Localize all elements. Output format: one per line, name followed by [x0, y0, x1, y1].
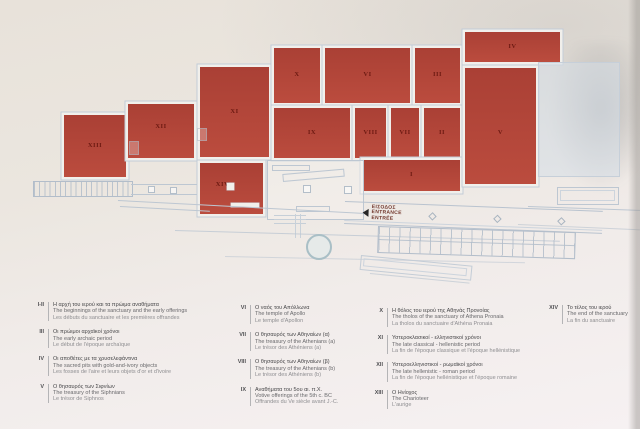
right-building-inner	[560, 190, 615, 201]
column-base	[493, 215, 501, 223]
legend-entry-vi: VIΟ ναός του ΑπόλλωναThe temple of Apoll…	[224, 305, 338, 324]
legend-line-fr: Les fosses de l'aire et leurs objets d'o…	[53, 369, 171, 375]
legend-entry-v: VΟ θησαυρός των ΣιφνίωνThe treasury of t…	[18, 384, 187, 403]
legend-numeral: VI	[224, 305, 251, 324]
legend-entry-xii: XIIΥστεροελληνιστικοί - ρωμαϊκοί χρόνοιT…	[361, 362, 520, 381]
legend-entry-ix: IXΑναθήματα του 5ου αι. π.Χ.Votive offer…	[224, 387, 338, 406]
room-i: I	[363, 160, 460, 191]
legend-entry-xiv: XIVΤο τέλος του ιερούThe end of the sanc…	[532, 305, 628, 324]
column-base	[557, 217, 565, 225]
pale-area	[538, 62, 620, 177]
panel-edge	[628, 0, 640, 429]
legend-numeral: V	[18, 384, 49, 403]
room-label-viii: VIII	[363, 130, 377, 137]
legend-text: Η θόλος του ιερού της Αθηνάς ΠρονοίαςThe…	[388, 308, 504, 327]
legend-column-2: VIΟ ναός του ΑπόλλωναThe temple of Apoll…	[224, 305, 338, 414]
legend-numeral: VIII	[224, 359, 251, 378]
column-base	[428, 212, 436, 220]
legend-numeral: XIV	[532, 305, 563, 324]
legend-line-fr: Le temple d'Apollon	[255, 318, 309, 324]
legend-entry-iv: IVΟι αποθέτες με τα χρυσελεφάντιναThe sa…	[18, 356, 187, 375]
legend-numeral: III	[18, 329, 49, 348]
room-vii: VII	[391, 108, 419, 158]
room-label-vi: VI	[363, 72, 371, 79]
legend-numeral: X	[361, 308, 388, 327]
legend-line-fr: Le trésor de Siphnos	[53, 396, 125, 402]
gridded-stoa	[377, 226, 576, 259]
steps	[274, 212, 306, 224]
legend-line-en: The beginnings of the sanctuary and the …	[53, 308, 187, 314]
legend-line-fr: L'aurige	[392, 402, 429, 408]
room-vi: VI	[325, 48, 410, 103]
courtyard-base	[272, 165, 310, 171]
room-label-v: V	[498, 130, 503, 137]
legend-entry-i-ii: I-IIΗ αρχή του ιερού και τα πρώιμα αναθή…	[18, 302, 187, 321]
room-label-x: X	[294, 72, 299, 79]
legend-column-1: I-IIΗ αρχή του ιερού και τα πρώιμα αναθή…	[18, 302, 187, 411]
legend-line-fr: Le trésor des Athéniens (b)	[255, 372, 335, 378]
legend-text: Το τέλος του ιερούThe end of the sanctua…	[563, 305, 628, 324]
room-label-vii: VII	[399, 130, 410, 137]
path-line	[131, 194, 197, 195]
legend-entry-x: XΗ θόλος του ιερού της Αθηνάς ΠρονοίαςTh…	[361, 308, 520, 327]
stoa-colonnade	[33, 181, 133, 197]
room-label-ix: IX	[308, 130, 316, 137]
legend-text: Υστεροκλασικοί - ελληνιστικοί χρόνοιThe …	[388, 335, 520, 354]
monument-sketch	[129, 141, 139, 155]
legend-numeral: I-II	[18, 302, 49, 321]
legend-line-fr: Les débuts du sanctuaire et les première…	[53, 315, 187, 321]
legend-entry-xiii: XIIIΟ ΗνίοχοςThe CharioteerL'aurige	[361, 390, 520, 409]
legend-text: Οι αποθέτες με τα χρυσελεφάντιναThe sacr…	[49, 356, 171, 375]
room-label-iii: III	[433, 72, 442, 79]
monument-base	[227, 183, 234, 190]
legend-text: Ο θησαυρός των Αθηναίων (β)The treasury …	[251, 359, 335, 378]
room-viii: VIII	[355, 108, 386, 158]
legend-numeral: IV	[18, 356, 49, 375]
legend-line-fr: Offrandes du Ve siècle avant J.-C.	[255, 399, 338, 405]
room-ii: II	[424, 108, 460, 158]
legend-line-fr: La tholos du sanctuaire d'Athéna Pronaia	[392, 321, 504, 327]
legend-line-el: Ο θησαυρός των Αθηναίων (α)	[255, 332, 335, 338]
room-ix: IX	[274, 108, 350, 158]
column-base	[148, 186, 155, 193]
legend-text: Οι πρώιμοι αρχαϊκοί χρόνοιThe early arch…	[49, 329, 130, 348]
entrance-marker: ΕΙΣΟΔΟΣ ENTRANCE ENTRÉE	[362, 205, 402, 223]
room-label-xiii: XIII	[88, 143, 102, 150]
info-panel-photo: XIII XII XI XIV X VI III IX VIII VII II …	[0, 0, 640, 429]
legend-line-fr: Le trésor des Athéniens (a)	[255, 345, 335, 351]
legend-numeral: XI	[361, 335, 388, 354]
legend-line-fr: Le début de l'époque archaïque	[53, 342, 130, 348]
tholos-circle	[306, 234, 332, 260]
legend-text: Υστεροελληνιστικοί - ρωμαϊκοί χρόνοιThe …	[388, 362, 517, 381]
legend-numeral: XIII	[361, 390, 388, 409]
legend-line-en: The temple of Apollo	[255, 311, 309, 317]
legend-text: Η αρχή του ιερού και τα πρώιμα αναθήματα…	[49, 302, 187, 321]
legend-entry-viii: VIIIΟ θησαυρός των Αθηναίων (β)The treas…	[224, 359, 338, 378]
room-label-ii: II	[439, 130, 445, 137]
entrance-arrow-icon	[362, 209, 368, 217]
stoa-midline	[379, 239, 575, 246]
legend-line-fr: La fin de l'époque hellénistique et l'ép…	[392, 375, 517, 381]
legend-line-fr: La fin du sanctuaire	[567, 318, 628, 324]
room-label-i: I	[410, 172, 413, 179]
legend-line-el: Ο θησαυρός των Αθηναίων (β)	[255, 359, 335, 365]
column-base	[303, 185, 311, 193]
legend-text: Ο ΗνίοχοςThe CharioteerL'aurige	[388, 390, 429, 409]
legend-numeral: IX	[224, 387, 251, 406]
column-base	[170, 187, 177, 194]
legend-entry-xi: XIΥστεροκλασικοί - ελληνιστικοί χρόνοιTh…	[361, 335, 520, 354]
legend-column-3: XΗ θόλος του ιερού της Αθηνάς ΠρονοίαςTh…	[361, 308, 520, 417]
monument-sketch	[197, 128, 207, 141]
legend-column-4: XIVΤο τέλος του ιερούThe end of the sanc…	[532, 305, 628, 332]
room-label-iv: IV	[508, 44, 516, 51]
room-iv: IV	[465, 32, 560, 62]
room-v: V	[465, 68, 536, 184]
legend-line-fr: La fin de l'époque classique et l'époque…	[392, 348, 520, 354]
legend-entry-iii: IIIΟι πρώιμοι αρχαϊκοί χρόνοιThe early a…	[18, 329, 187, 348]
room-label-xii: XII	[155, 124, 166, 131]
column-base	[344, 186, 352, 194]
room-x: X	[274, 48, 320, 103]
legend-text: Ο ναός του ΑπόλλωναThe temple of ApolloL…	[251, 305, 309, 324]
legend-numeral: XII	[361, 362, 388, 381]
legend-text: Αναθήματα του 5ου αι. π.Χ.Votive offerin…	[251, 387, 338, 406]
room-xiii: XIII	[64, 115, 126, 177]
terrace-line	[120, 206, 210, 212]
room-label-xi: XI	[230, 109, 238, 116]
legend-text: Ο θησαυρός των ΣιφνίωνThe treasury of th…	[49, 384, 125, 403]
legend-entry-vii: VIIΟ θησαυρός των Αθηναίων (α)The treasu…	[224, 332, 338, 351]
legend-line-en: The tholos of the sanctuary of Athena Pr…	[392, 314, 504, 320]
path-line	[131, 184, 197, 185]
legend-text: Ο θησαυρός των Αθηναίων (α)The treasury …	[251, 332, 335, 351]
legend-line-en: The end of the sanctuary	[567, 311, 628, 317]
legend-line-el: Οι πρώιμοι αρχαϊκοί χρόνοι	[53, 329, 130, 335]
room-iii: III	[415, 48, 460, 103]
room-xi: XI	[200, 67, 269, 157]
legend-numeral: VII	[224, 332, 251, 351]
